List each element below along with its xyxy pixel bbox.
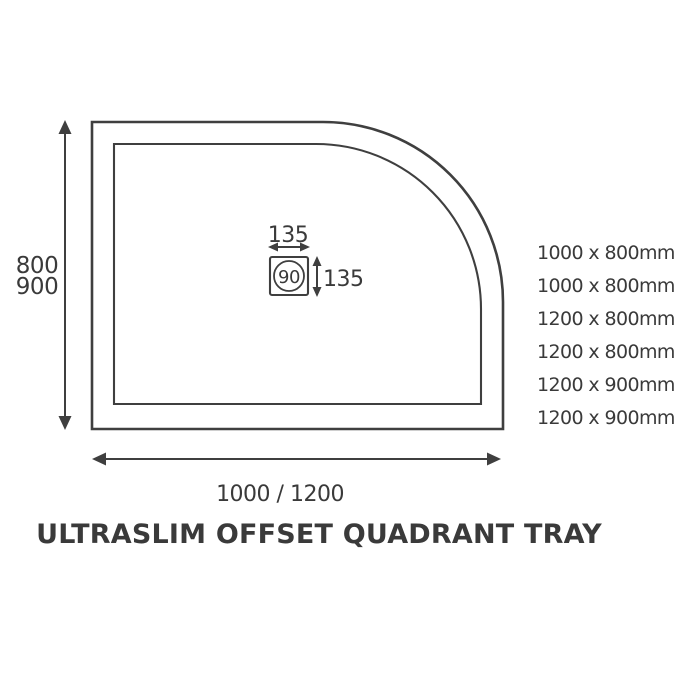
diagram-title: ULTRASLIM OFFSET QUADRANT TRAY — [36, 519, 602, 550]
waste-height-label: 135 — [323, 267, 364, 292]
available-sizes-list: 1000 x 800mm 1000 x 800mm 1200 x 800mm 1… — [537, 242, 675, 429]
size-list-item: 1000 x 800mm — [537, 242, 675, 264]
arrow-down-icon — [59, 416, 72, 430]
arrow-down-icon — [313, 287, 322, 297]
size-list-item: 1200 x 900mm — [537, 407, 675, 429]
arrow-left-icon — [92, 453, 106, 466]
tray-technical-drawing: 800 900 1000 / 1200 90 135 135 — [0, 0, 675, 675]
depth-dimension: 800 900 — [16, 120, 72, 430]
arrow-right-icon — [487, 453, 501, 466]
width-dimension: 1000 / 1200 — [92, 453, 501, 508]
waste-detail: 90 135 135 — [268, 223, 364, 297]
arrow-up-icon — [313, 256, 322, 266]
arrow-up-icon — [59, 120, 72, 134]
waste-width-label: 135 — [268, 223, 309, 248]
shower-tray-diagram-page: 800 900 1000 / 1200 90 135 135 — [0, 0, 675, 675]
size-list-item: 1200 x 800mm — [537, 341, 675, 363]
size-list-item: 1000 x 800mm — [537, 275, 675, 297]
depth-label-900: 900 — [16, 274, 58, 300]
width-label: 1000 / 1200 — [216, 482, 344, 507]
size-list-item: 1200 x 900mm — [537, 374, 675, 396]
waste-diameter-label: 90 — [278, 267, 300, 288]
size-list-item: 1200 x 800mm — [537, 308, 675, 330]
